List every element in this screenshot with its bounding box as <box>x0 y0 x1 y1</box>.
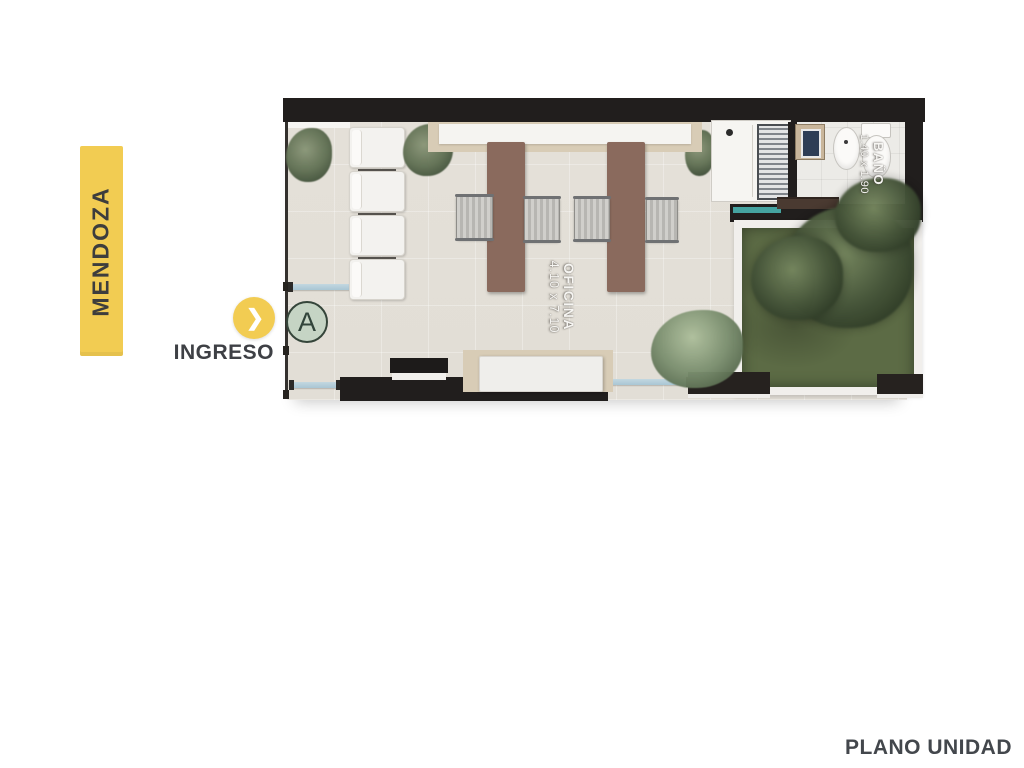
floor-plan: BAÑO 1.40 x 1.90 OFICINA 4.10 x 7.10 <box>283 98 925 405</box>
floor-plan-page: MENDOZA ❯ INGRESO A <box>0 0 1024 768</box>
chevron-right-icon: ❯ <box>246 307 264 329</box>
office-label: OFICINA 4.10 x 7.10 <box>542 252 582 342</box>
office-name: OFICINA <box>561 263 577 331</box>
waiting-chairs <box>349 127 405 300</box>
task-chair <box>524 197 560 242</box>
waiting-chair <box>349 215 405 256</box>
bench-sofa <box>479 356 603 392</box>
waiting-chair <box>349 259 405 300</box>
task-chair <box>456 195 493 240</box>
office-dimensions: 4.10 x 7.10 <box>547 261 561 334</box>
entrance-arrow-marker: ❯ <box>233 297 275 339</box>
bench-seat <box>733 207 781 213</box>
unit-marker: A <box>286 301 328 343</box>
bathroom-dimensions: 1.40 x 1.90 <box>857 134 870 194</box>
bathroom-label: BAÑO 1.40 x 1.90 <box>851 120 891 208</box>
planter-plant <box>651 310 743 388</box>
reception-counter <box>439 124 691 144</box>
wall-post <box>283 390 289 399</box>
entry-glass-door <box>288 284 354 290</box>
planter-box <box>877 374 923 398</box>
courtyard-lawn <box>742 228 914 387</box>
vanity-sink <box>795 124 825 160</box>
wall-post <box>283 346 289 355</box>
glass-wall <box>289 382 341 388</box>
waiting-chair <box>349 127 405 168</box>
wall-beam <box>288 122 350 128</box>
footer-label: PLANO UNIDAD <box>700 736 1012 760</box>
media-console-shelf <box>392 373 446 380</box>
kitchen-appliance <box>757 124 791 200</box>
task-chair <box>646 198 678 242</box>
unit-letter: A <box>298 309 316 336</box>
top-wall <box>283 98 925 122</box>
street-banner: MENDOZA <box>80 146 123 356</box>
desk <box>607 142 645 292</box>
media-console <box>390 358 448 373</box>
potted-plant <box>286 128 332 182</box>
task-chair <box>574 197 610 241</box>
street-name-label: MENDOZA <box>88 186 115 316</box>
bathroom-name: BAÑO <box>870 142 885 186</box>
wood-shelf <box>777 197 839 209</box>
waiting-chair <box>349 171 405 212</box>
entrance-label: INGRESO <box>150 341 274 365</box>
